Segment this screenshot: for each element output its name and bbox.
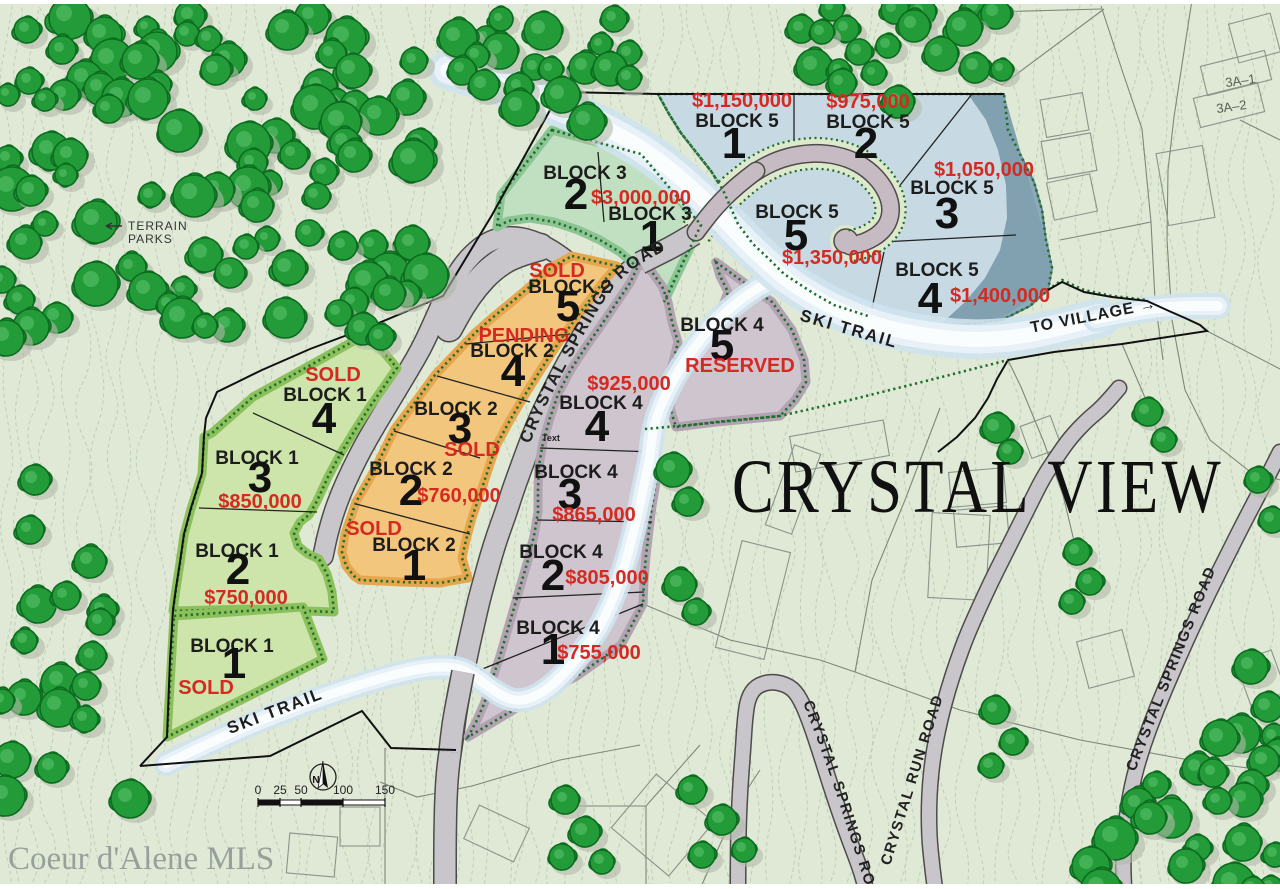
svg-text:TERRAIN: TERRAIN — [128, 219, 188, 233]
svg-text:4: 4 — [585, 402, 610, 451]
svg-text:N: N — [312, 775, 319, 786]
svg-text:100: 100 — [333, 783, 353, 797]
svg-text:3: 3 — [935, 189, 959, 238]
svg-text:50: 50 — [294, 783, 308, 797]
svg-text:4: 4 — [918, 274, 943, 323]
svg-text:$865,000: $865,000 — [552, 504, 635, 526]
svg-text:$925,000: $925,000 — [587, 373, 670, 395]
svg-text:25: 25 — [273, 783, 287, 797]
svg-text:SOLD: SOLD — [178, 677, 234, 699]
svg-text:$760,000: $760,000 — [417, 485, 500, 507]
svg-text:$850,000: $850,000 — [218, 491, 301, 513]
svg-text:4: 4 — [501, 347, 526, 396]
svg-text:PARKS: PARKS — [128, 232, 173, 246]
svg-text:2: 2 — [854, 119, 878, 168]
svg-text:4: 4 — [312, 394, 337, 443]
svg-text:$755,000: $755,000 — [557, 642, 640, 664]
svg-text:1: 1 — [722, 119, 746, 168]
svg-text:SOLD: SOLD — [444, 439, 500, 461]
svg-text:$1,350,000: $1,350,000 — [782, 247, 882, 269]
svg-text:$805,000: $805,000 — [565, 567, 648, 589]
svg-text:$750,000: $750,000 — [204, 587, 287, 609]
svg-text:Text: Text — [542, 433, 560, 443]
svg-text:2: 2 — [541, 551, 565, 600]
svg-text:150: 150 — [375, 783, 395, 797]
svg-text:0: 0 — [255, 783, 262, 797]
svg-text:$1,400,000: $1,400,000 — [950, 285, 1050, 307]
svg-text:2: 2 — [564, 170, 588, 219]
svg-text:RESERVED: RESERVED — [685, 355, 795, 377]
svg-text:Coeur d'Alene MLS: Coeur d'Alene MLS — [8, 841, 274, 877]
svg-text:1: 1 — [402, 541, 426, 590]
svg-text:$975,000: $975,000 — [826, 91, 909, 113]
svg-text:$1,150,000: $1,150,000 — [692, 90, 792, 112]
svg-text:CRYSTAL VIEW: CRYSTAL VIEW — [732, 445, 1224, 529]
svg-text:SOLD: SOLD — [305, 364, 361, 386]
